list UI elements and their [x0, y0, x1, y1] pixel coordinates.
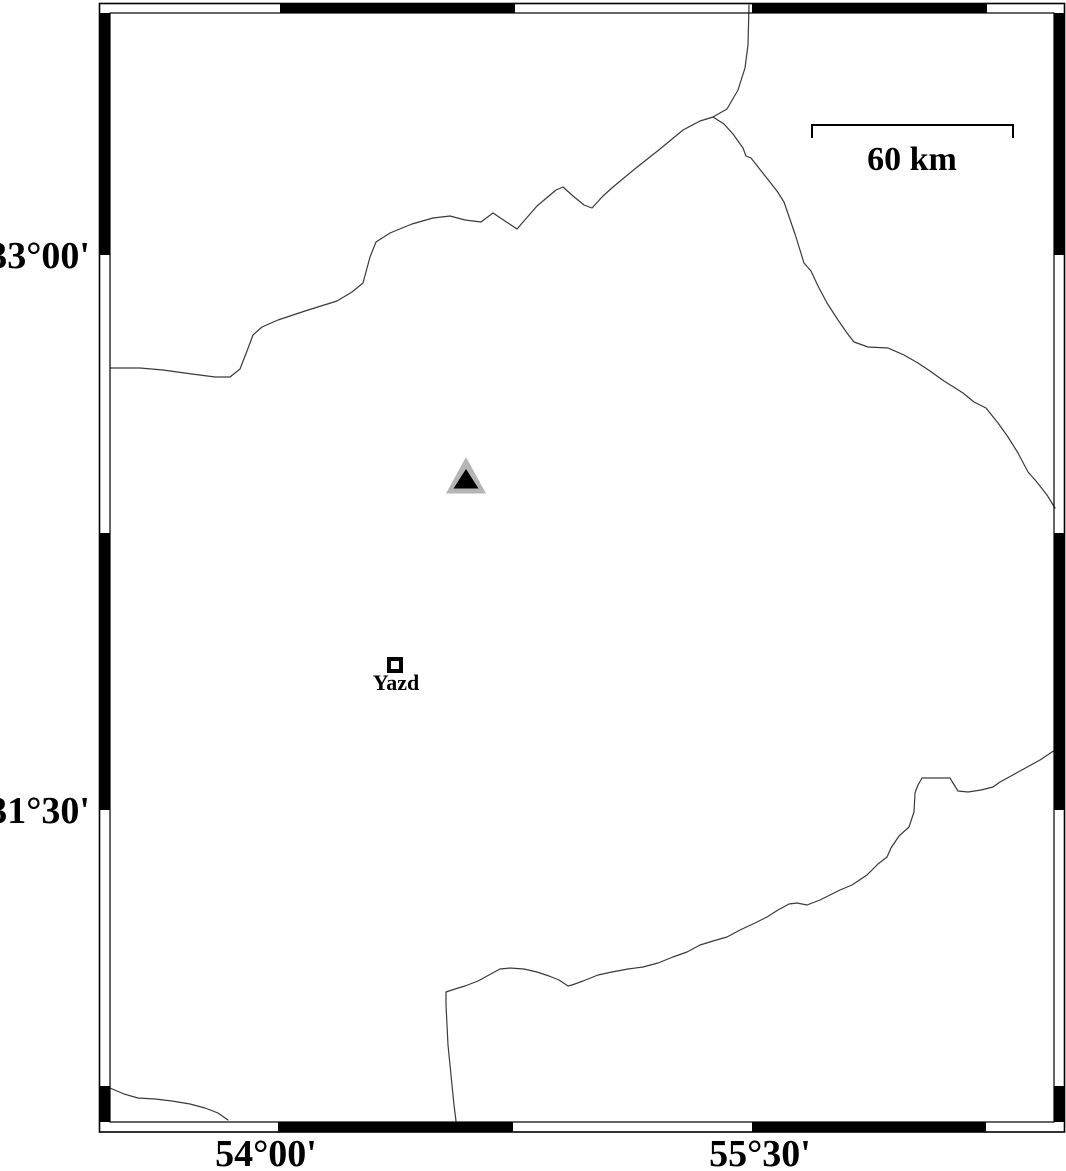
latitude-label-31-30: 31°30' [0, 790, 90, 832]
longitude-label-55-30: 55°30' [709, 1133, 811, 1171]
frame-tick-segment [1054, 13, 1065, 255]
city-label: Yazd [373, 670, 419, 695]
scale-bar-label: 60 km [867, 141, 957, 178]
frame-tick-segment [278, 1122, 513, 1132]
frame-tick-segment [1054, 1086, 1065, 1122]
latitude-label-33-00: 33°00' [0, 235, 90, 277]
frame-tick-segment [752, 4, 987, 14]
frame-tick-segment [100, 1086, 111, 1122]
frame-tick-segment [752, 1122, 986, 1132]
frame-tick-segment [280, 4, 515, 14]
frame-tick-segment [1054, 533, 1065, 810]
map-canvas: 60 km Yazd 33°00' 31°30' 54°00' 55°30' [0, 0, 1066, 1171]
longitude-label-54-00: 54°00' [215, 1133, 317, 1171]
frame-tick-segment [100, 533, 111, 810]
frame-tick-segment [100, 13, 111, 255]
